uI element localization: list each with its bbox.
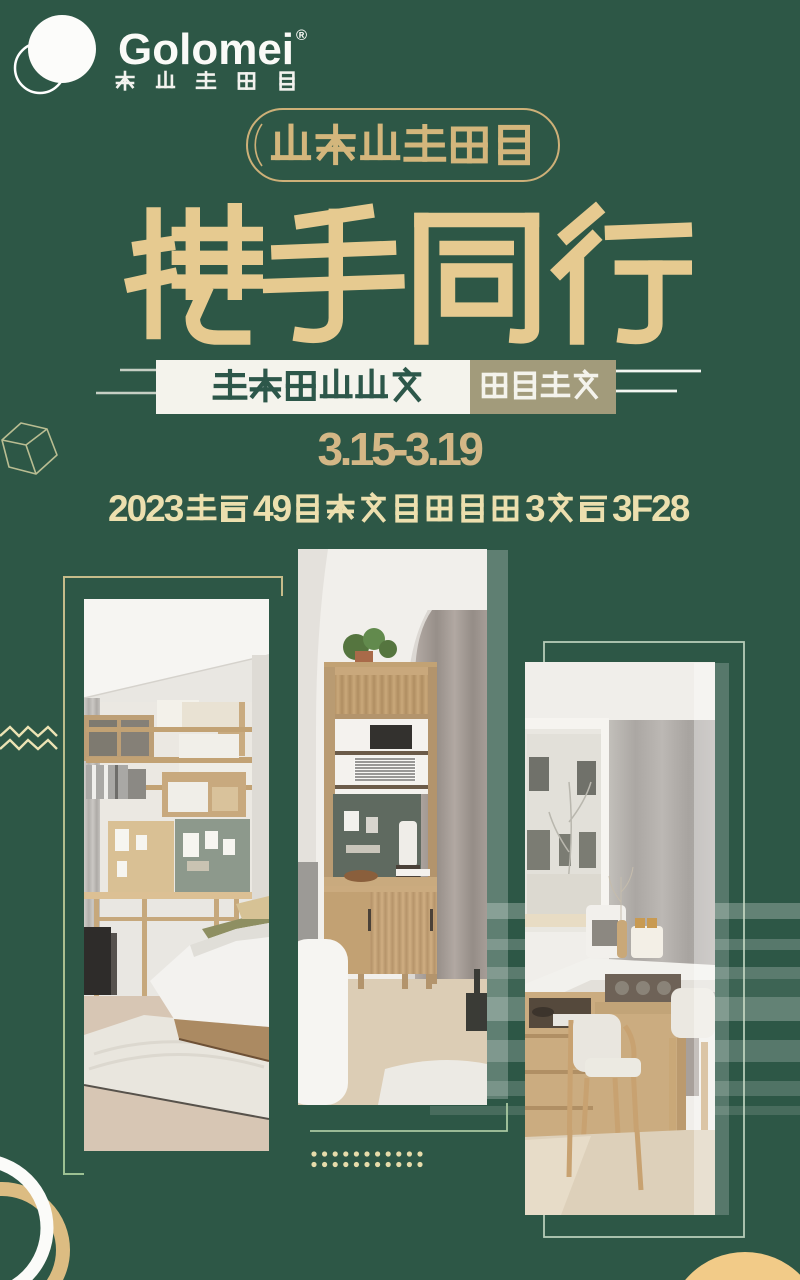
svg-text:2023: 2023 [108,488,184,529]
svg-text:3: 3 [525,488,545,529]
svg-text:®: ® [296,27,307,44]
svg-text:3F28: 3F28 [612,488,690,529]
svg-text:3.15-3.19: 3.15-3.19 [318,423,483,475]
svg-text:49: 49 [253,488,292,529]
svg-text:Golomei: Golomei [118,25,294,74]
